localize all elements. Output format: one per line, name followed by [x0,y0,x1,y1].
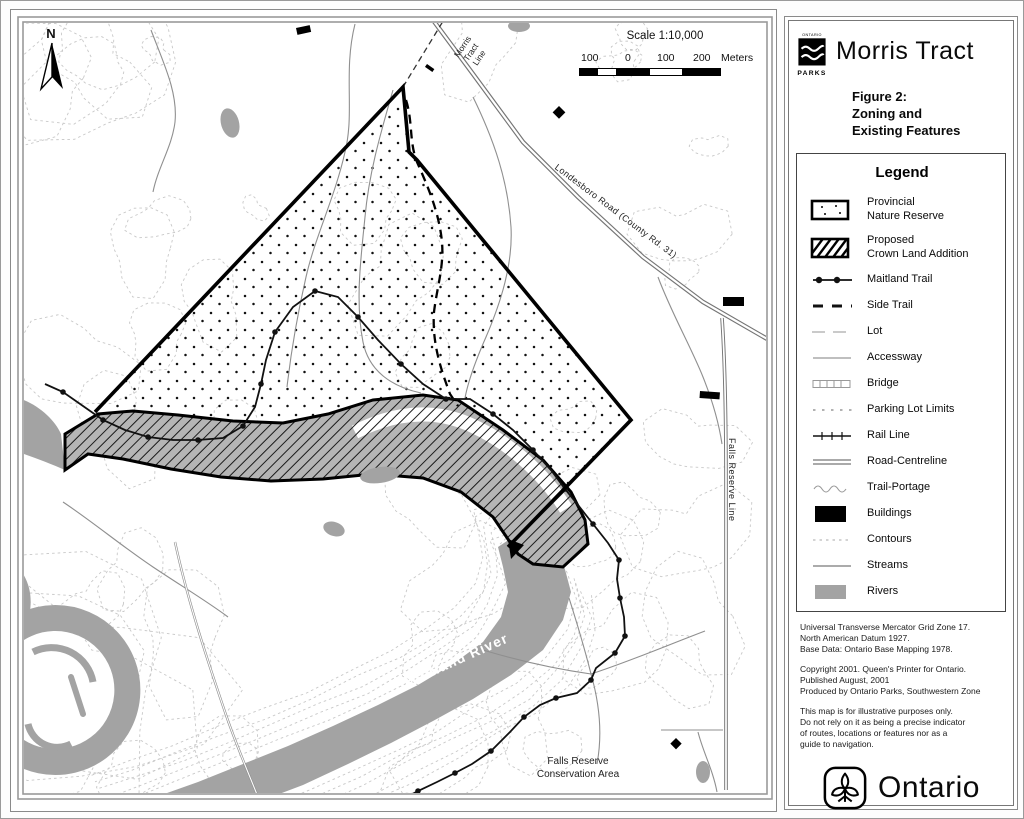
legend-item: Trail-Portage [809,475,995,501]
streams-swatch [809,556,855,576]
legend-item: Proposed Crown Land Addition [809,229,995,267]
oxbow-lake [11,618,127,762]
legend-item: Provincial Nature Reserve [809,191,995,229]
scale-tick: 100 [581,52,599,64]
legend-item: Streams [809,553,995,579]
legend-item: Side Trail [809,293,995,319]
legend-item: Bridge [809,371,995,397]
legend-item: Road-Centreline [809,449,995,475]
map-marginalia-panel: ONTARIO PARKS Morris Tract Figure 2: Zon… [784,16,1018,810]
rivers-swatch [809,582,855,602]
legend-item: Buildings [809,501,995,527]
legend-item-label: Proposed Crown Land Addition [867,234,969,262]
scale-bar-block: Scale 1:10,000 100 0 100 200 Meters [569,30,761,76]
scale-bar [579,68,721,76]
falls-reserve-line-road [722,318,726,790]
accessway-road [175,542,258,797]
legend-title: Legend [809,164,995,181]
legend-item: Lot [809,319,995,345]
maitland-trail-swatch [809,270,855,290]
scale-tick: 200 [693,52,711,64]
map-title: Morris Tract [836,37,974,66]
contours-swatch [809,530,855,550]
ontario-wordmark-block: Ontario [796,765,1006,811]
parking-lot-limits-swatch [809,400,855,420]
legend-box: Legend Provincial Nature Reserve Propose… [796,153,1006,612]
parks-logo-bottom-text: PARKS [797,70,826,77]
trail-portage-swatch [809,478,855,498]
legend-item-label: Maitland Trail [867,273,932,287]
accessway-swatch [809,348,855,368]
disclaimer-note: This map is for illustrative purposes on… [800,706,1006,750]
figure-caption: Figure 2: Zoning and Existing Features [852,89,1006,140]
legend-item-label: Bridge [867,377,899,391]
scale-ticks: 100 0 100 200 Meters [569,52,761,65]
north-label: N [31,26,71,41]
legend-item-label: Provincial Nature Reserve [867,196,944,224]
map-panel: N Scale 1:10,000 100 0 100 200 Meters Mo… [10,9,777,812]
datum-note: Universal Transverse Mercator Grid Zone … [800,622,1006,655]
scale-unit: Meters [721,52,753,64]
scale-tick: 100 [657,52,675,64]
lot-swatch [809,322,855,342]
legend-item-label: Streams [867,559,908,573]
legend-item: Contours [809,527,995,553]
north-arrow-icon [36,41,66,93]
legend-item-label: Lot [867,325,882,339]
legend-item: Maitland Trail [809,267,995,293]
copyright-note: Copyright 2001. Queen's Printer for Onta… [800,664,1006,697]
scale-tick: 0 [625,52,631,64]
scanned-map-page: N Scale 1:10,000 100 0 100 200 Meters Mo… [0,0,1024,819]
label-falls-reserve-line: Falls Reserve Line [727,438,737,522]
map-footnotes: Universal Transverse Mercator Grid Zone … [800,622,1006,759]
legend-item: Rail Line [809,423,995,449]
morris-tract-line [403,13,448,87]
marginalia-inner: ONTARIO PARKS Morris Tract Figure 2: Zon… [788,20,1014,806]
legend-item-label: Rivers [867,585,898,599]
crown-land-swatch [809,236,855,260]
ontario-trillium-icon [822,765,868,811]
scale-title: Scale 1:10,000 [569,30,761,42]
legend-item: Parking Lot Limits [809,397,995,423]
legend-item-label: Side Trail [867,299,913,313]
legend-item-label: Buildings [867,507,912,521]
legend-item-label: Parking Lot Limits [867,403,954,417]
side-trail-swatch [809,296,855,316]
nature-reserve-swatch [809,198,855,222]
title-block: ONTARIO PARKS Morris Tract [796,31,1006,77]
parks-logo-top-text: ONTARIO [802,33,822,37]
rail-line-swatch [809,426,855,446]
legend-item: Accessway [809,345,995,371]
legend-item-label: Accessway [867,351,922,365]
ontario-parks-logo-icon: ONTARIO PARKS [796,31,828,77]
legend-item-label: Road-Centreline [867,455,947,469]
legend-item-label: Trail-Portage [867,481,930,495]
legend-item-label: Contours [867,533,912,547]
bridge-swatch [809,374,855,394]
buildings-swatch [809,504,855,524]
north-arrow: N [31,26,71,98]
legend-item: Rivers [809,579,995,605]
ontario-wordmark: Ontario [878,771,980,805]
road-centreline-swatch [809,452,855,472]
label-falls-reserve-area: Falls Reserve Conservation Area [503,756,653,781]
legend-item-label: Rail Line [867,429,910,443]
